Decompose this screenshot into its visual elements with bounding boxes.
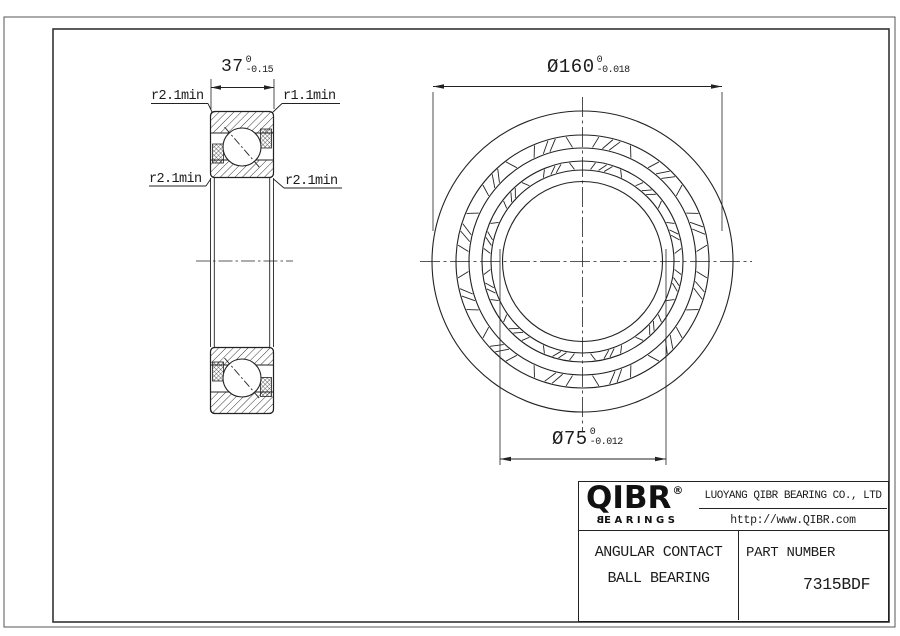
dim-bore-text: Ø75 0 -0.012	[552, 429, 623, 449]
dim-width-lines	[211, 79, 274, 109]
label-r-mid-right: r2.1min	[285, 174, 338, 189]
dim-outer-lines	[433, 84, 722, 231]
dim-bore-tolerance: 0 -0.012	[590, 428, 623, 448]
company-logo: QIBR® BEARINGS	[586, 483, 683, 526]
part-number-label: PART NUMBER	[746, 545, 835, 561]
dim-outer-value: Ø160	[547, 57, 595, 77]
cage-left-top	[213, 144, 224, 163]
dim-width-tolerance: 0 -0.15	[246, 56, 274, 76]
title-block: QIBR® BEARINGS LUOYANG QIBR BEARING CO.,…	[578, 481, 889, 622]
dim-bore-value: Ø75	[552, 429, 588, 449]
company-website: http://www.QIBR.com	[699, 509, 887, 527]
part-number-cell: PART NUMBER 7315BDF	[739, 531, 888, 620]
company-info: LUOYANG QIBR BEARING CO., LTD http://www…	[699, 482, 887, 530]
product-name-line2: BALL BEARING	[579, 570, 738, 587]
dim-width-text: 37 0 -0.15	[221, 57, 273, 77]
company-name: LUOYANG QIBR BEARING CO., LTD	[699, 482, 887, 502]
cage-right-bottom	[261, 378, 272, 397]
title-block-header-row: QIBR® BEARINGS LUOYANG QIBR BEARING CO.,…	[579, 482, 888, 531]
dim-outer-text: Ø160 0 -0.018	[547, 57, 630, 77]
dim-outer-tolerance: 0 -0.018	[597, 56, 630, 76]
section-view	[149, 79, 342, 414]
dim-width-value: 37	[221, 57, 244, 77]
label-r-top-left: r2.1min	[151, 89, 204, 104]
front-view	[420, 84, 752, 465]
label-r-top-right: r1.1min	[283, 89, 336, 104]
logo-subtext: BEARINGS	[593, 515, 683, 526]
bore-lines	[211, 178, 274, 347]
label-r-mid-left: r2.1min	[149, 172, 202, 187]
registered-mark: ®	[672, 484, 683, 497]
cage-right-top	[261, 129, 272, 148]
product-name-cell: ANGULAR CONTACT BALL BEARING	[579, 531, 739, 620]
cage-left-bottom	[213, 362, 224, 381]
title-block-body-row: ANGULAR CONTACT BALL BEARING PART NUMBER…	[579, 531, 888, 620]
logo-text: QIBR	[586, 480, 671, 516]
part-number-value: 7315BDF	[803, 575, 870, 594]
drawing-sheet: 37 0 -0.15 Ø160 0 -0.018 Ø75 0 -0.012 r2…	[0, 0, 900, 636]
product-name-line1: ANGULAR CONTACT	[579, 544, 738, 561]
